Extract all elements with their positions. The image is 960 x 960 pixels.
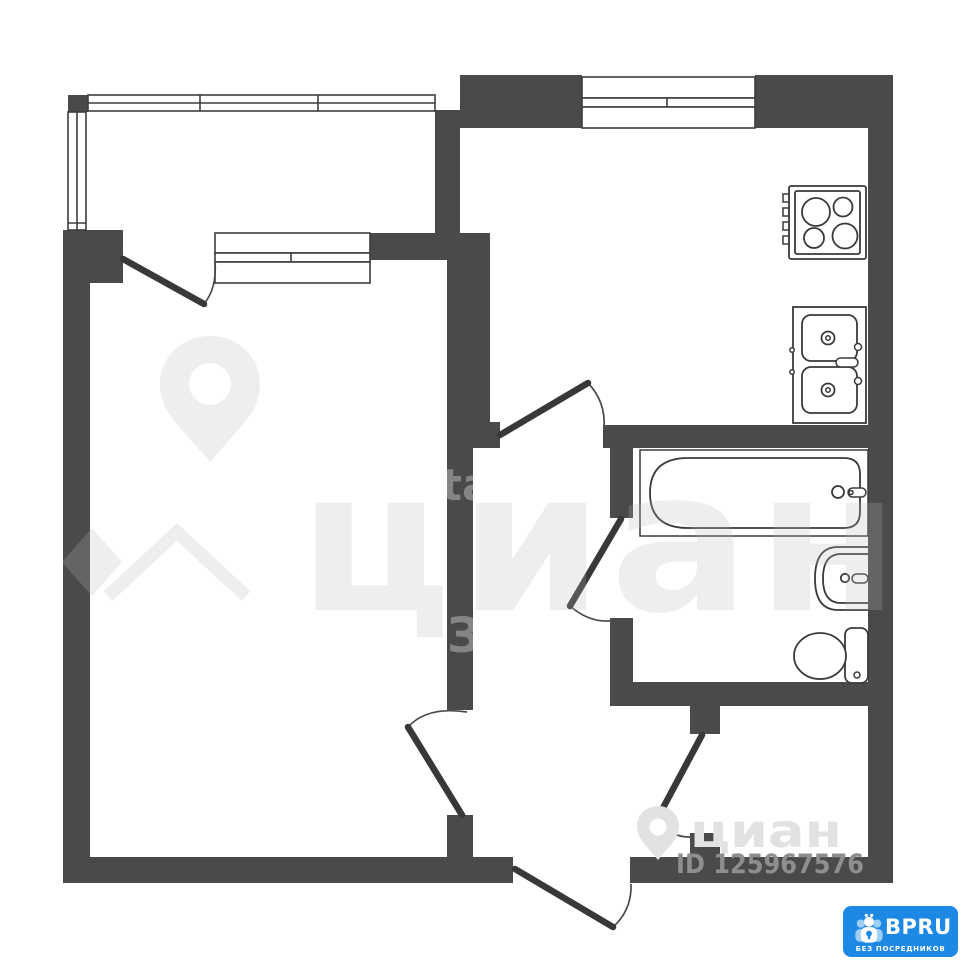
bpru-badge: BPRU БЕЗ ПОСРЕДНИКОВ [843,906,958,957]
sink-hinge [790,348,794,352]
watermark-fragment: ta [441,460,492,511]
people-group-icon [849,909,889,949]
window-reveal [215,233,370,253]
living-room-window [215,233,370,283]
floor-plan-image: циан ta З циан ID 125967576 BPRU БЕЗ ПОС… [0,0,960,960]
door-leaf [123,259,204,304]
stove-body [789,186,866,259]
living-room-door [408,711,467,815]
listing-id-text: ID 125967576 [676,849,864,880]
door-leaf [500,383,588,435]
door-swing-arc [588,383,604,428]
wall [755,75,893,128]
door-leaf [515,869,613,927]
balcony-glazing [68,95,435,230]
sink-tap [855,344,862,351]
badge-tagline-text: БЕЗ ПОСРЕДНИКОВ [843,945,958,953]
wall [460,75,582,128]
window-glazing [215,253,370,262]
sink-drain-dot [826,336,830,340]
double-sink-icon [790,307,866,423]
wall [447,815,473,857]
door-swing-arc [408,711,467,727]
floor-plan-drawing: циан ta З циан ID 125967576 [0,0,960,960]
door-swing-arc [613,884,631,927]
wall [435,110,460,233]
watermark-pin-hole [189,363,231,405]
door-leaf [408,727,462,815]
sink-drain-dot [826,388,830,392]
sink-faucet [836,358,858,367]
sink-hinge [790,370,794,374]
watermark-fragment: З [447,608,481,664]
wall [68,95,88,112]
wall [63,230,123,283]
kitchen-window [582,77,755,128]
sink-tap [855,378,862,385]
door-swing-arc [204,262,215,304]
wall [63,857,513,883]
watermark-logo-text: циан [298,429,906,657]
window-reveal [582,77,755,98]
window-sill [582,107,755,128]
watermark-pin-hole [650,819,667,836]
toilet-button [854,672,860,678]
entrance-door [515,869,631,927]
kitchen-door [500,383,604,435]
watermark-zigzag [108,532,246,596]
wall [690,706,720,734]
wall [447,233,490,448]
window-glazing [582,98,755,107]
window-sill [215,262,370,283]
stove-icon [783,186,866,259]
badge-brand-text: BPRU [885,915,952,939]
wall [610,682,893,706]
balcony-door [123,259,215,304]
